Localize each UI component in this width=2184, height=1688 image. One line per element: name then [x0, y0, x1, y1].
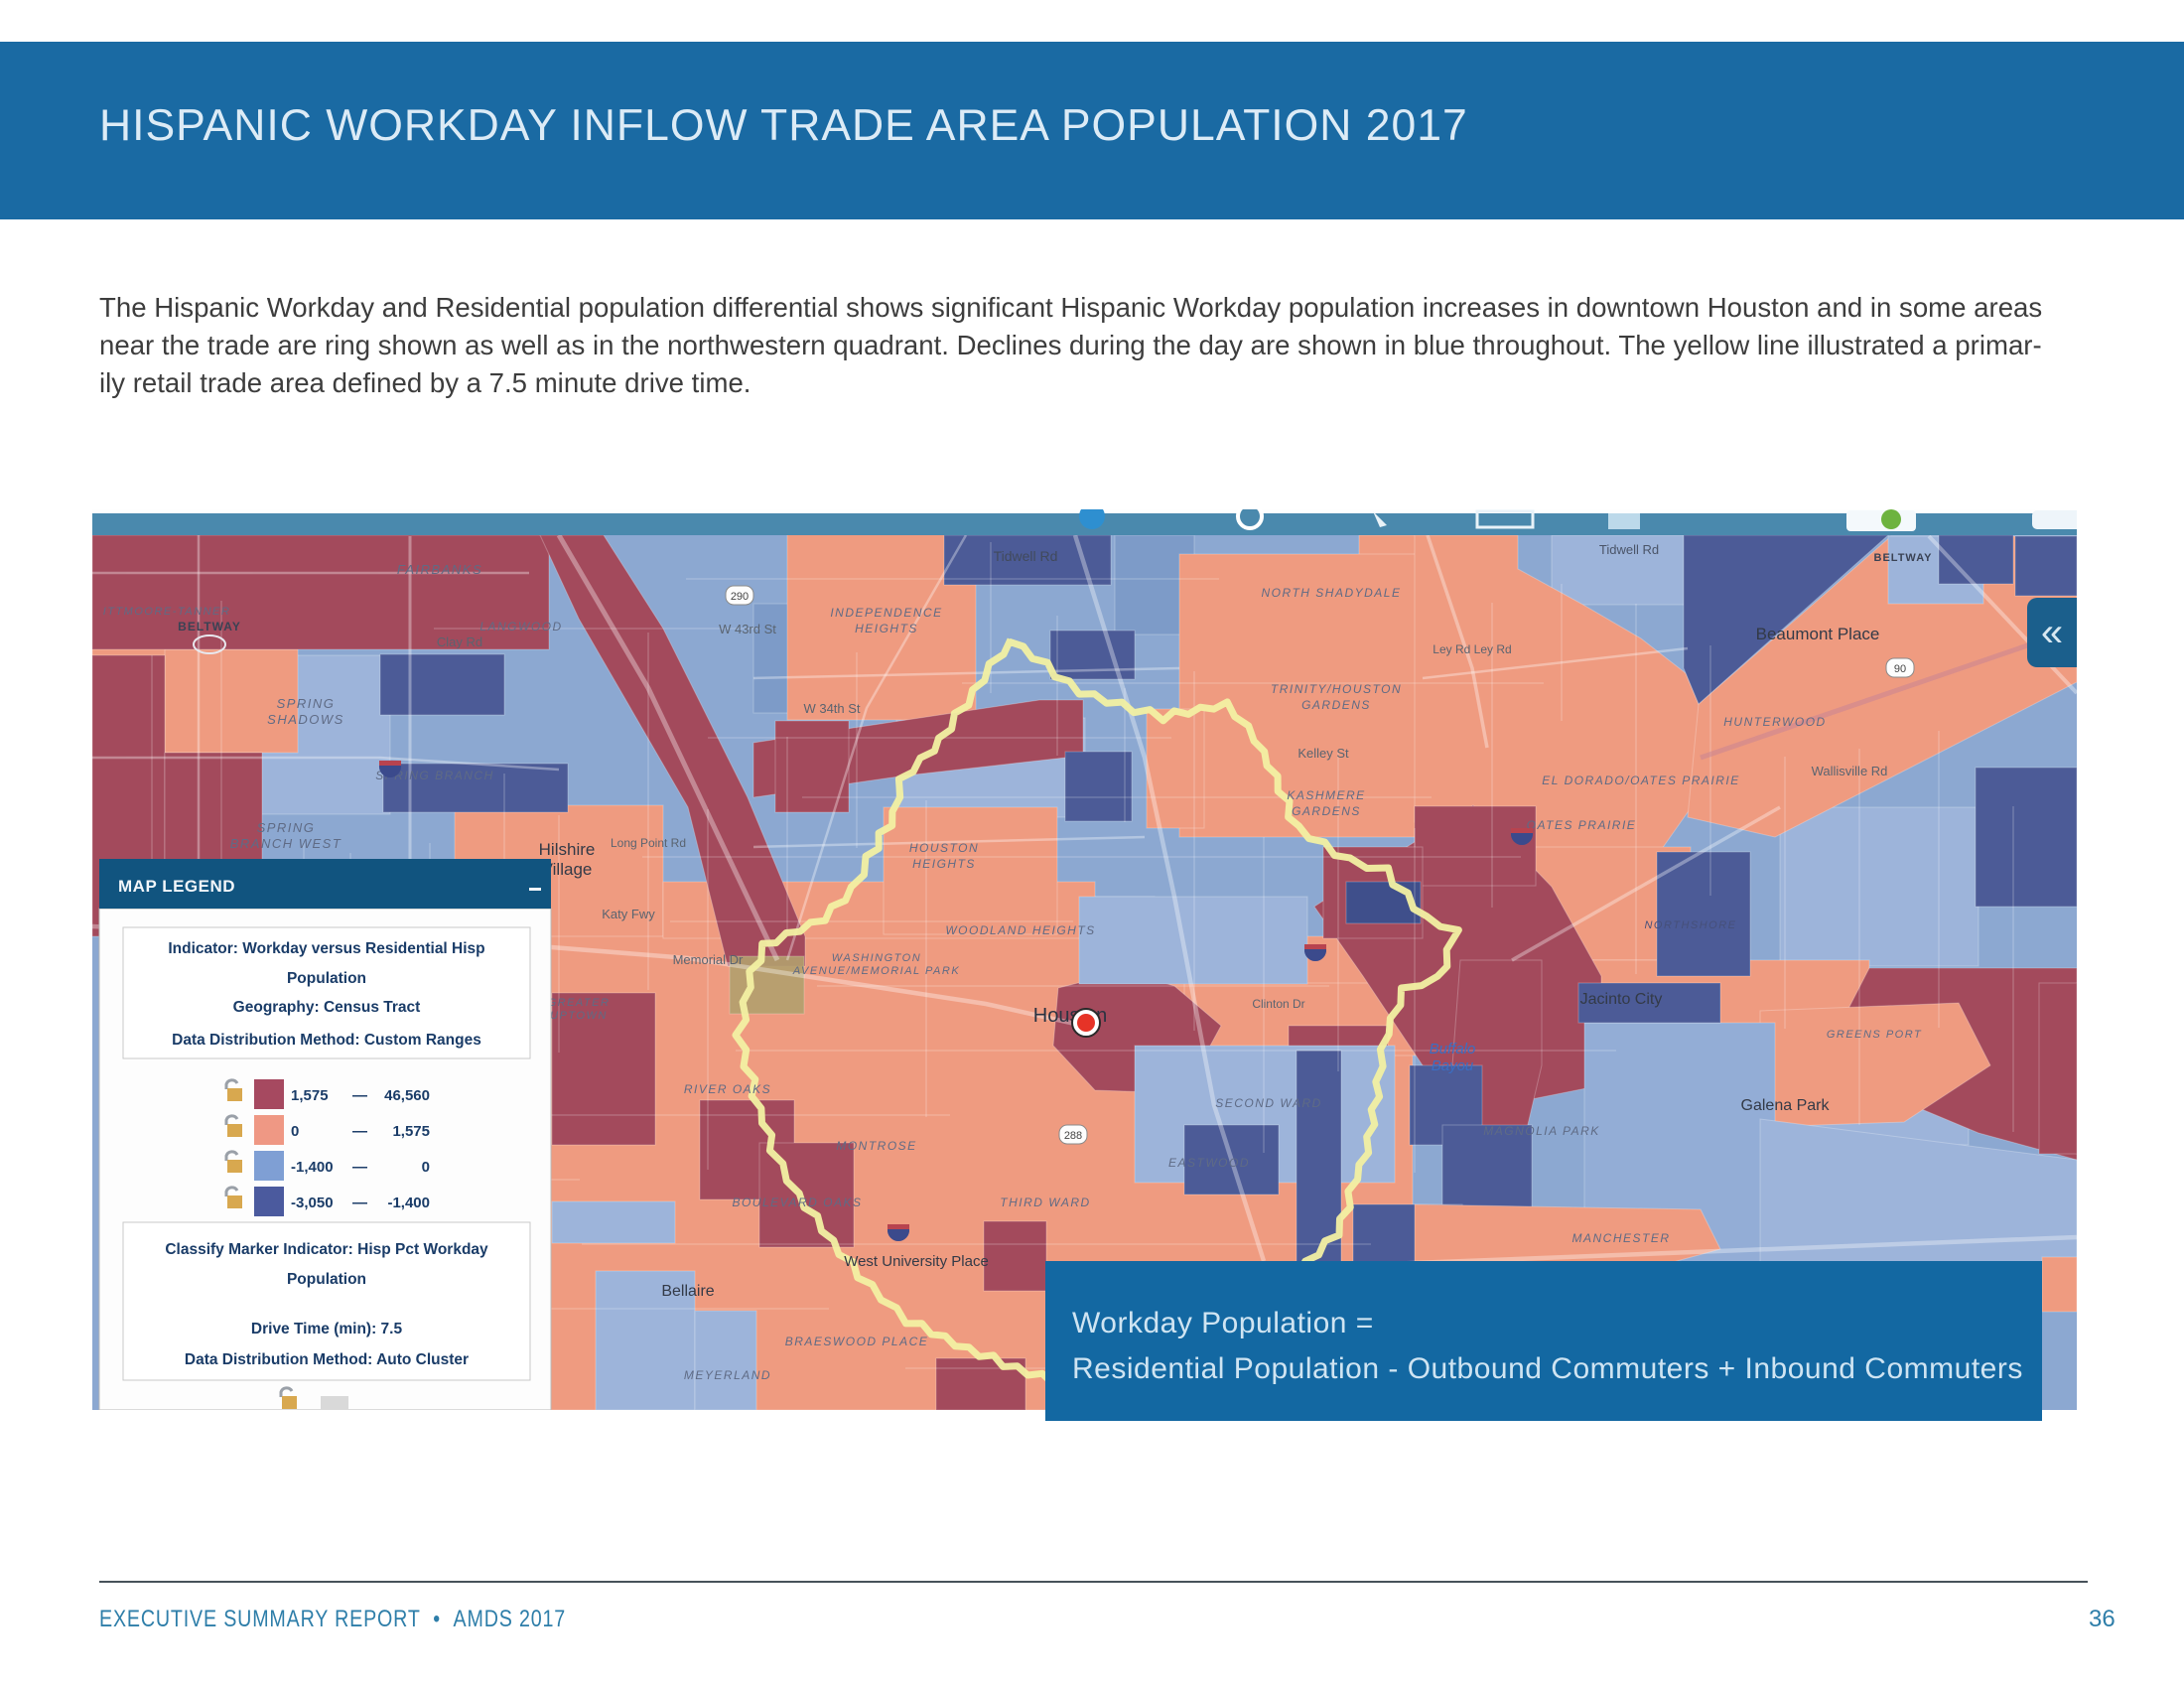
svg-text:Clay Rd: Clay Rd — [437, 634, 482, 649]
svg-text:—: — — [352, 1195, 367, 1211]
svg-text:HEIGHTS: HEIGHTS — [912, 857, 976, 871]
svg-text:Tidwell Rd: Tidwell Rd — [994, 548, 1058, 564]
svg-text:GREENS PORT: GREENS PORT — [1827, 1029, 1922, 1041]
svg-text:—: — — [352, 1087, 367, 1104]
svg-text:EASTWOOD: EASTWOOD — [1168, 1156, 1250, 1170]
svg-text:-3,050: -3,050 — [291, 1195, 334, 1211]
svg-text:46,560: 46,560 — [384, 1087, 430, 1104]
svg-text:MAGNOLIA PARK: MAGNOLIA PARK — [1483, 1124, 1600, 1138]
svg-text:MONTROSE: MONTROSE — [836, 1139, 916, 1153]
svg-text:BRAESWOOD PLACE: BRAESWOOD PLACE — [785, 1335, 929, 1348]
svg-text:288: 288 — [1064, 1130, 1082, 1142]
svg-text:TRINITY/HOUSTON: TRINITY/HOUSTON — [1271, 682, 1402, 696]
svg-text:Workday Population =: Workday Population = — [1072, 1307, 1374, 1339]
svg-text:Hilshire: Hilshire — [539, 840, 596, 859]
svg-text:1,575: 1,575 — [291, 1087, 329, 1104]
svg-text:W 43rd St: W 43rd St — [719, 622, 776, 636]
svg-text:SECOND WARD: SECOND WARD — [1215, 1096, 1322, 1110]
svg-text:Kelley St: Kelley St — [1297, 746, 1349, 761]
svg-text:West University Place: West University Place — [844, 1253, 989, 1270]
svg-text:SPRING: SPRING — [257, 820, 316, 835]
svg-text:Population: Population — [287, 1271, 366, 1288]
svg-text:UPTOWN: UPTOWN — [550, 1010, 608, 1022]
svg-text:NORTHSHORE: NORTHSHORE — [1644, 919, 1736, 931]
svg-text:-1,400: -1,400 — [291, 1159, 334, 1176]
svg-text:SPRING: SPRING — [277, 696, 336, 711]
svg-text:BELTWAY: BELTWAY — [178, 620, 241, 633]
svg-text:KASHMERE: KASHMERE — [1287, 788, 1365, 802]
svg-text:Data Distribution Method: Auto: Data Distribution Method: Auto Cluster — [185, 1351, 469, 1368]
svg-text:1,575: 1,575 — [392, 1123, 430, 1140]
svg-text:Indicator: Workday versus Resi: Indicator: Workday versus Residential Hi… — [168, 940, 484, 957]
svg-text:NORTH SHADYDALE: NORTH SHADYDALE — [1262, 586, 1402, 600]
svg-text:90: 90 — [1894, 663, 1906, 675]
svg-text:HUNTERWOOD: HUNTERWOOD — [1723, 715, 1826, 729]
svg-text:Beaumont Place: Beaumont Place — [1756, 625, 1880, 643]
svg-text:LANGWOOD: LANGWOOD — [479, 620, 562, 633]
svg-text:BRANCH WEST: BRANCH WEST — [230, 836, 342, 851]
svg-text:MEYERLAND: MEYERLAND — [684, 1368, 771, 1382]
svg-text:Clinton Dr: Clinton Dr — [1252, 997, 1304, 1011]
svg-text:BOULEVARD OAKS: BOULEVARD OAKS — [732, 1196, 862, 1209]
svg-text:290: 290 — [731, 591, 749, 603]
svg-text:Galena Park: Galena Park — [1741, 1097, 1831, 1114]
svg-text:Population: Population — [287, 970, 366, 987]
svg-text:0: 0 — [422, 1159, 430, 1176]
svg-text:MAP LEGEND: MAP LEGEND — [118, 877, 235, 896]
svg-text:Buffalo: Buffalo — [1430, 1041, 1476, 1057]
svg-text:Tidwell Rd: Tidwell Rd — [1599, 542, 1659, 557]
svg-text:Geography: Census Tract: Geography: Census Tract — [233, 999, 421, 1016]
svg-text:Classify Marker Indicator: His: Classify Marker Indicator: Hisp Pct Work… — [165, 1241, 488, 1258]
svg-text:Bellaire: Bellaire — [661, 1283, 714, 1300]
svg-text:Jacinto City: Jacinto City — [1580, 991, 1663, 1008]
svg-text:Residential Population - Outbo: Residential Population - Outbound Commut… — [1072, 1352, 2023, 1385]
svg-text:Bayou: Bayou — [1432, 1057, 1474, 1074]
svg-text:RIVER OAKS: RIVER OAKS — [684, 1082, 771, 1096]
svg-text:Ley Rd Ley Rd: Ley Rd Ley Rd — [1433, 642, 1511, 656]
svg-text:Drive Time (min): 7.5: Drive Time (min): 7.5 — [251, 1321, 403, 1337]
svg-text:—: — — [352, 1159, 367, 1176]
svg-text:Katy Fwy: Katy Fwy — [602, 907, 655, 921]
svg-text:Long Point Rd: Long Point Rd — [611, 836, 686, 850]
svg-text:W 34th St: W 34th St — [803, 701, 860, 716]
svg-text:WASHINGTON: WASHINGTON — [832, 952, 921, 964]
svg-text:«: « — [2041, 611, 2063, 654]
svg-text:FAIRBANKS: FAIRBANKS — [397, 562, 482, 577]
svg-text:INDEPENDENCE: INDEPENDENCE — [830, 606, 942, 620]
svg-text:HOUSTON: HOUSTON — [909, 841, 979, 855]
svg-text:-1,400: -1,400 — [387, 1195, 430, 1211]
svg-text:GREATER: GREATER — [548, 997, 611, 1009]
svg-text:EL DORADO/OATES PRAIRIE: EL DORADO/OATES PRAIRIE — [1542, 774, 1739, 787]
svg-text:GARDENS: GARDENS — [1292, 804, 1361, 818]
svg-text:GARDENS: GARDENS — [1301, 698, 1371, 712]
svg-text:HEIGHTS: HEIGHTS — [855, 622, 918, 635]
svg-text:AVENUE/MEMORIAL PARK: AVENUE/MEMORIAL PARK — [792, 965, 960, 977]
svg-text:WOODLAND HEIGHTS: WOODLAND HEIGHTS — [945, 923, 1095, 937]
svg-text:THIRD WARD: THIRD WARD — [1000, 1196, 1090, 1209]
svg-text:OATES PRAIRIE: OATES PRAIRIE — [1527, 818, 1637, 832]
svg-text:—: — — [352, 1123, 367, 1140]
svg-text:Wallisville Rd: Wallisville Rd — [1812, 764, 1888, 778]
svg-text:MANCHESTER: MANCHESTER — [1571, 1231, 1670, 1245]
svg-text:Data Distribution Method: Cust: Data Distribution Method: Custom Ranges — [172, 1032, 481, 1049]
svg-text:SHADOWS: SHADOWS — [267, 712, 344, 727]
svg-text:BELTWAY: BELTWAY — [1874, 552, 1933, 564]
svg-text:ITTMOORE-TANNER: ITTMOORE-TANNER — [103, 606, 231, 618]
svg-text:0: 0 — [291, 1123, 299, 1140]
svg-text:Memorial Dr: Memorial Dr — [673, 952, 744, 967]
